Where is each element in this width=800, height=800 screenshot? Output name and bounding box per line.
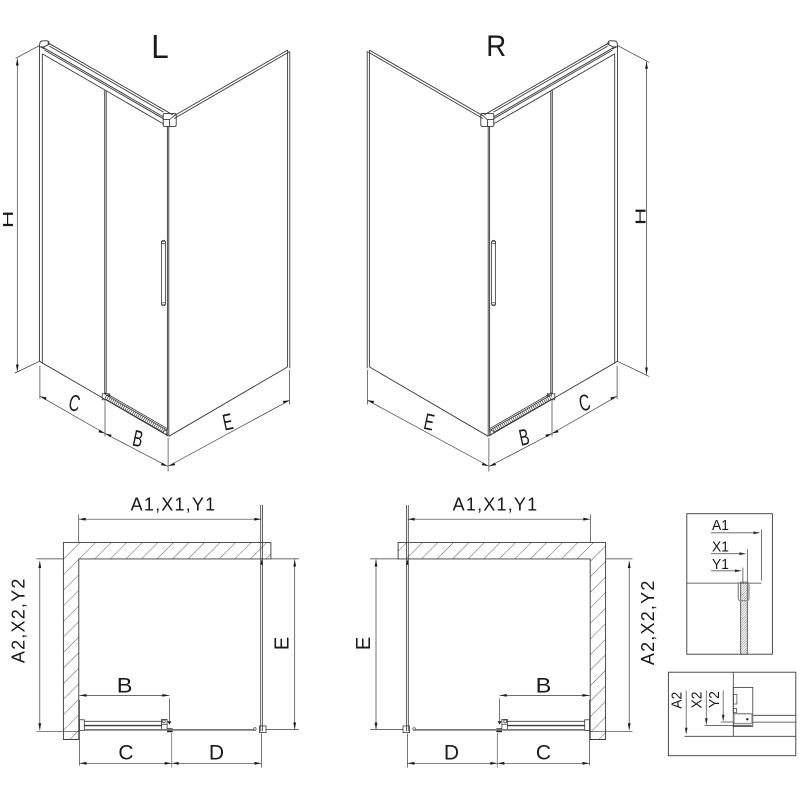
- svg-text:L: L: [151, 28, 168, 65]
- svg-text:X1: X1: [712, 539, 729, 556]
- svg-text:E: E: [422, 410, 437, 437]
- svg-text:B: B: [117, 674, 133, 698]
- svg-text:E: E: [353, 637, 375, 650]
- svg-text:R: R: [486, 30, 506, 63]
- svg-text:A1,X1,Y1: A1,X1,Y1: [453, 495, 539, 515]
- svg-text:Y2: Y2: [707, 691, 724, 708]
- svg-text:B: B: [536, 674, 552, 698]
- svg-text:B: B: [517, 425, 532, 452]
- svg-text:H: H: [633, 208, 649, 226]
- svg-text:A1: A1: [712, 518, 729, 535]
- svg-text:E: E: [272, 637, 294, 650]
- svg-text:C: C: [577, 390, 593, 418]
- svg-text:H: H: [0, 211, 16, 229]
- svg-text:D: D: [209, 742, 224, 765]
- svg-text:X2: X2: [689, 692, 706, 709]
- svg-text:D: D: [444, 742, 459, 765]
- svg-text:C: C: [118, 742, 133, 765]
- svg-text:C: C: [66, 390, 82, 418]
- svg-text:A2: A2: [669, 692, 686, 709]
- svg-text:B: B: [130, 427, 145, 454]
- svg-text:A2,X2,Y2: A2,X2,Y2: [9, 577, 29, 663]
- svg-text:C: C: [536, 742, 551, 765]
- svg-text:E: E: [221, 410, 236, 437]
- svg-text:A1,X1,Y1: A1,X1,Y1: [131, 495, 217, 515]
- svg-text:A2,X2,Y2: A2,X2,Y2: [638, 579, 658, 665]
